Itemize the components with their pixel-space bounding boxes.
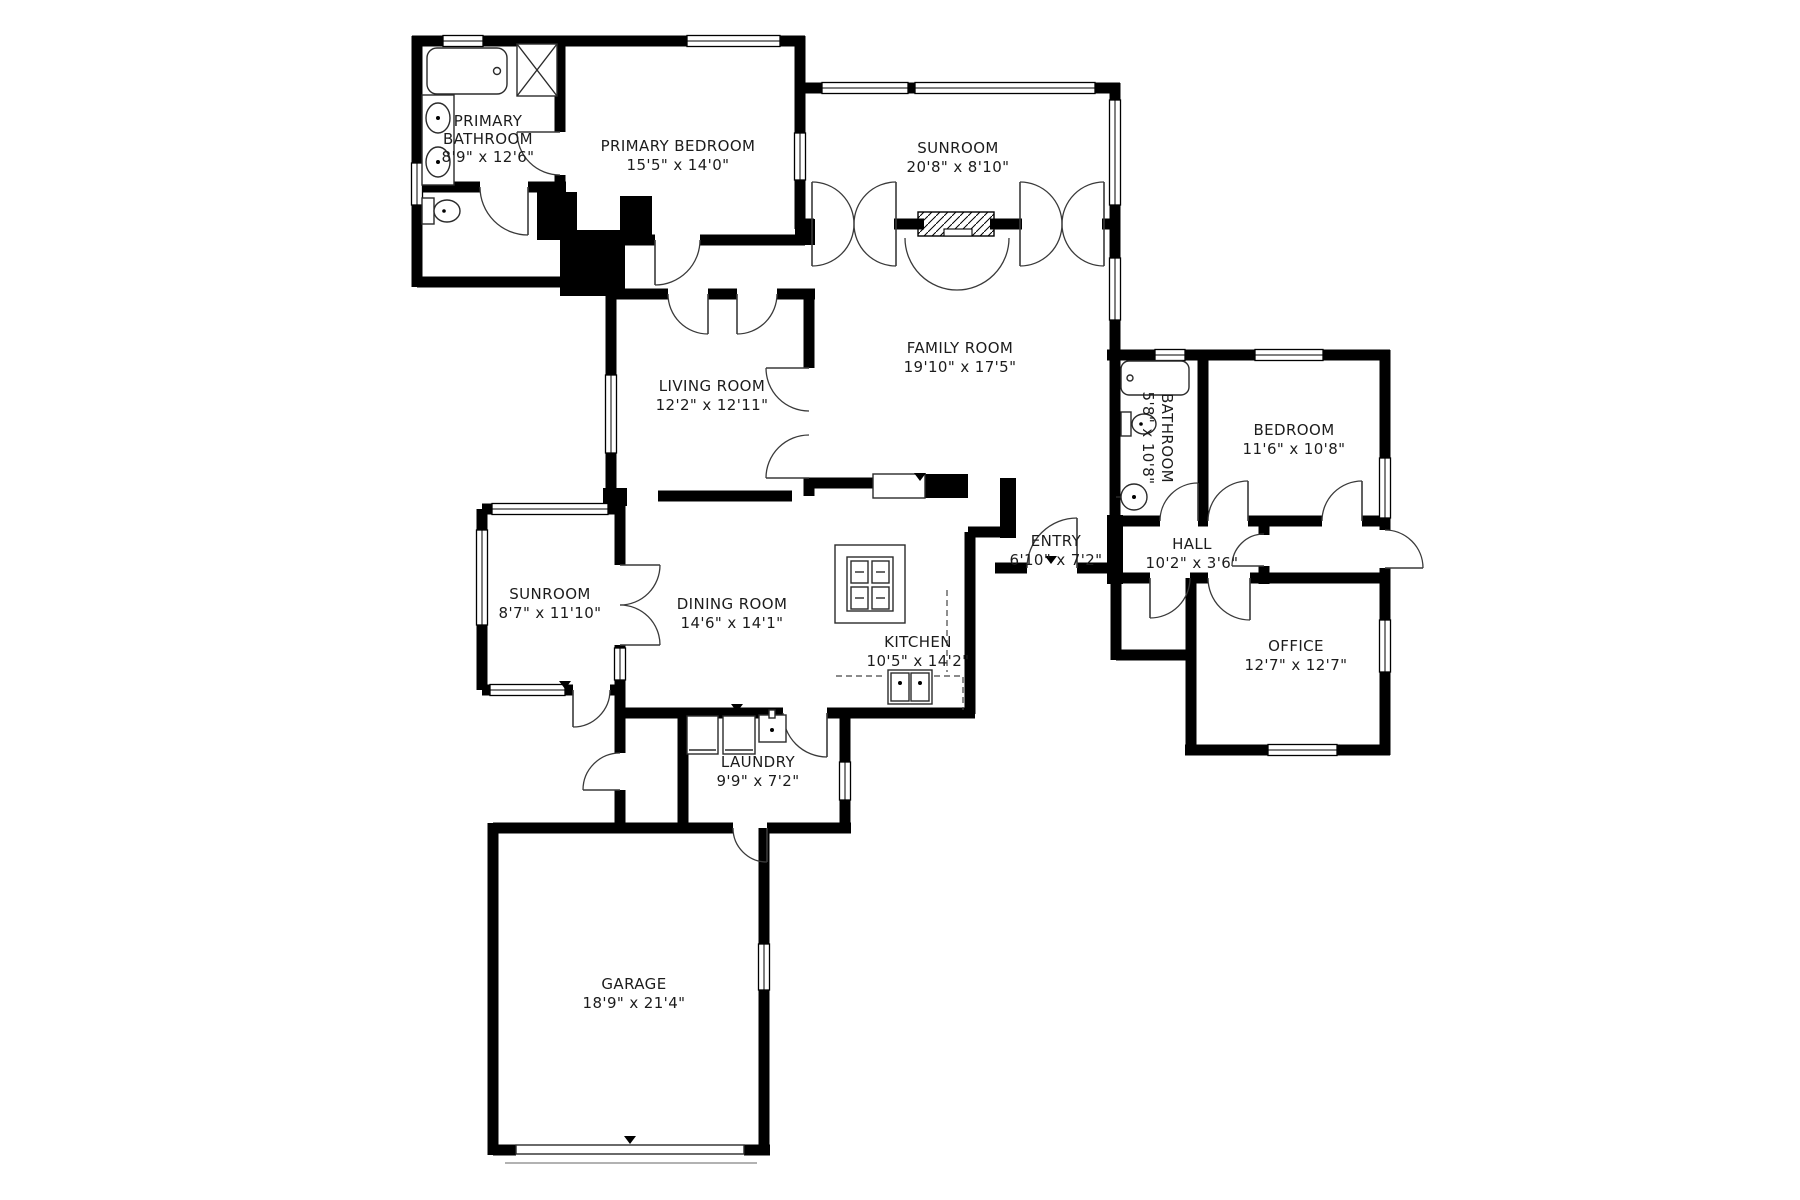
washer-icon xyxy=(687,716,718,754)
window-icon xyxy=(795,133,806,180)
door-sunroom-left-exit xyxy=(573,690,610,727)
svg-text:12'7" x 12'7": 12'7" x 12'7" xyxy=(1245,656,1348,674)
svg-text:SUNROOM: SUNROOM xyxy=(917,139,999,157)
door-laundry xyxy=(783,713,827,757)
svg-text:FAMILY ROOM: FAMILY ROOM xyxy=(907,339,1014,357)
window-icon xyxy=(412,163,423,205)
svg-text:10'2" x 3'6": 10'2" x 3'6" xyxy=(1146,554,1239,572)
room-label-laundry: LAUNDRY 9'9" x 7'2" xyxy=(716,753,799,790)
room-label-entry: ENTRY 6'10" x 7'2" xyxy=(1010,532,1103,569)
window-icon xyxy=(1268,745,1337,756)
window-icon xyxy=(687,36,780,47)
room-label-family-room: FAMILY ROOM 19'10" x 17'5" xyxy=(904,339,1017,376)
french-doors-sunroom-left xyxy=(620,565,660,645)
window-icon xyxy=(1380,620,1391,672)
door-office xyxy=(1208,578,1250,620)
svg-text:19'10" x 17'5": 19'10" x 17'5" xyxy=(904,358,1017,376)
svg-text:PRIMARY: PRIMARY xyxy=(454,112,523,130)
svg-text:18'9" x 21'4": 18'9" x 21'4" xyxy=(583,994,686,1012)
toilet-icon xyxy=(422,198,460,224)
room-label-living-room: LIVING ROOM 12'2" x 12'11" xyxy=(656,377,769,414)
window-icon xyxy=(759,944,770,990)
shower-icon xyxy=(517,44,557,96)
window-icon xyxy=(822,83,908,94)
hearth-arch xyxy=(905,238,1009,290)
floor-plan-page: PRIMARY BATHROOM 8'9" x 12'6" PRIMARY BE… xyxy=(0,0,1800,1200)
room-label-bedroom: BEDROOM 11'6" x 10'8" xyxy=(1243,421,1346,458)
door-bedroom xyxy=(1208,481,1248,521)
svg-text:BATHROOM: BATHROOM xyxy=(1158,393,1176,483)
dryer-icon xyxy=(723,716,755,754)
svg-text:HALL: HALL xyxy=(1172,535,1212,553)
garage-door-icon xyxy=(505,1145,757,1163)
room-label-kitchen: KITCHEN 10'5" x 14'2" xyxy=(867,633,970,670)
door-rear-exterior xyxy=(1385,530,1423,568)
svg-text:9'9" x 7'2": 9'9" x 7'2" xyxy=(716,772,799,790)
door-living-room-left xyxy=(668,294,708,334)
door-porch-corridor xyxy=(583,753,620,790)
window-icon xyxy=(477,530,488,625)
window-icon xyxy=(1255,350,1323,361)
svg-text:SUNROOM: SUNROOM xyxy=(509,585,591,603)
door-bedroom-closet xyxy=(1322,481,1362,521)
french-doors-sunroom-family-right xyxy=(1020,182,1104,266)
svg-text:8'7" x 11'10": 8'7" x 11'10" xyxy=(499,604,602,622)
window-icon xyxy=(443,36,483,47)
window-icon xyxy=(840,762,851,800)
bathtub-icon xyxy=(1121,361,1189,395)
window-icon xyxy=(915,83,1095,94)
svg-text:LIVING ROOM: LIVING ROOM xyxy=(659,377,765,395)
svg-text:BATHROOM: BATHROOM xyxy=(443,130,533,148)
svg-text:KITCHEN: KITCHEN xyxy=(884,633,952,651)
svg-text:10'5" x 14'2": 10'5" x 14'2" xyxy=(867,652,970,670)
floor-plan: PRIMARY BATHROOM 8'9" x 12'6" PRIMARY BE… xyxy=(0,0,1800,1200)
svg-text:LAUNDRY: LAUNDRY xyxy=(721,753,796,771)
room-label-garage: GARAGE 18'9" x 21'4" xyxy=(583,975,686,1012)
svg-text:8'9" x 12'6": 8'9" x 12'6" xyxy=(442,148,535,166)
window-icon xyxy=(606,375,617,453)
room-label-hall: HALL 10'2" x 3'6" xyxy=(1146,535,1239,572)
room-label-office: OFFICE 12'7" x 12'7" xyxy=(1245,637,1348,674)
threshold-markers-icon xyxy=(559,473,1057,1144)
window-icon xyxy=(490,685,565,696)
window-icon xyxy=(1110,258,1121,320)
svg-text:14'6" x 14'1": 14'6" x 14'1" xyxy=(681,614,784,632)
laundry-sink-icon xyxy=(759,710,786,742)
svg-text:PRIMARY BEDROOM: PRIMARY BEDROOM xyxy=(601,137,756,155)
room-label-sunroom-left: SUNROOM 8'7" x 11'10" xyxy=(499,585,602,622)
room-label-dining-room: DINING ROOM 14'6" x 14'1" xyxy=(677,595,788,632)
svg-text:GARAGE: GARAGE xyxy=(601,975,666,993)
room-label-primary-bathroom: PRIMARY BATHROOM 8'9" x 12'6" xyxy=(442,112,535,166)
kitchen-island-icon xyxy=(835,545,905,623)
door-bathroom xyxy=(1160,483,1198,521)
svg-text:DINING ROOM: DINING ROOM xyxy=(677,595,788,613)
french-doors-living-family xyxy=(766,368,809,478)
window-icon xyxy=(1110,100,1121,205)
door-toilet-room xyxy=(480,187,528,235)
sink-icon xyxy=(1116,484,1147,510)
kitchen-sink-icon xyxy=(888,670,932,704)
room-label-primary-bedroom: PRIMARY BEDROOM 15'5" x 14'0" xyxy=(601,137,756,174)
window-icon xyxy=(615,648,626,680)
svg-text:6'10" x 7'2": 6'10" x 7'2" xyxy=(1010,551,1103,569)
svg-text:20'8" x 8'10": 20'8" x 8'10" xyxy=(907,158,1010,176)
door-hall-closet xyxy=(1150,578,1190,618)
svg-text:11'6" x 10'8": 11'6" x 10'8" xyxy=(1243,440,1346,458)
svg-text:OFFICE: OFFICE xyxy=(1268,637,1324,655)
room-label-sunroom-top: SUNROOM 20'8" x 8'10" xyxy=(907,139,1010,176)
fireplace-icon xyxy=(918,212,994,236)
french-doors-sunroom-family-left xyxy=(812,182,896,266)
svg-text:5'8" x 10'8": 5'8" x 10'8" xyxy=(1139,392,1157,485)
window-icon xyxy=(1155,350,1185,361)
window-icon xyxy=(492,504,608,515)
svg-text:15'5" x 14'0": 15'5" x 14'0" xyxy=(627,156,730,174)
door-primary-suite-hall xyxy=(655,240,700,285)
bathtub-icon xyxy=(427,48,507,94)
room-label-bathroom: BATHROOM 5'8" x 10'8" xyxy=(1139,392,1176,485)
window-icon xyxy=(1380,458,1391,518)
svg-text:ENTRY: ENTRY xyxy=(1031,532,1082,550)
door-living-room-right xyxy=(737,294,777,334)
svg-text:12'2" x 12'11": 12'2" x 12'11" xyxy=(656,396,769,414)
svg-text:BEDROOM: BEDROOM xyxy=(1253,421,1334,439)
